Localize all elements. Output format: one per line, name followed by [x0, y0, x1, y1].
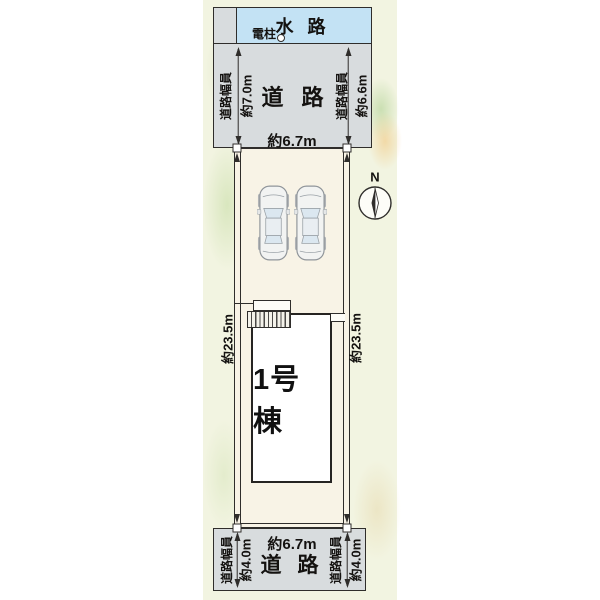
car-icon — [294, 185, 327, 261]
entrance-steps — [247, 311, 291, 328]
lot-depth-arrowhead — [344, 514, 350, 523]
lot-depth-value-west: 約23.5m — [222, 314, 235, 364]
waterway-band: 水路 — [213, 7, 372, 44]
building-outline: 1号棟 — [251, 313, 332, 483]
utility-pole-marker — [277, 34, 285, 42]
boundary-connector-east — [331, 313, 345, 322]
top-frontage-dimension: 約6.7m — [234, 130, 350, 151]
watercolor-blob — [368, 112, 402, 170]
lot-corner-marker — [343, 524, 352, 533]
bottom-road-width-caption-west: 道路幅員 — [221, 536, 233, 584]
north-compass-icon — [357, 185, 393, 221]
top-road-width-value-west: 約7.0m — [241, 75, 254, 118]
waterway-road-corner — [214, 8, 237, 43]
north-label: N — [370, 171, 379, 184]
lot-depth-arrowhead — [344, 153, 350, 162]
top-road-width-caption-west: 道路幅員 — [220, 72, 232, 120]
top-road-label: 道路 — [243, 80, 341, 112]
lot-depth-arrowhead — [234, 514, 240, 523]
lot-depth-value-east: 約23.5m — [350, 313, 363, 363]
top-road-width-caption-east: 道路幅員 — [336, 72, 348, 120]
boundary-connector-west — [235, 303, 253, 304]
utility-pole-label: 電柱 — [252, 28, 276, 40]
car-icon — [257, 185, 290, 261]
porch-canopy — [253, 300, 291, 311]
bottom-frontage-dimension: 約6.7m — [234, 533, 350, 554]
site-plan-canvas: 水路 電柱 道路 道路幅員 約7.0m 道路幅員 約6.6m 約6.7m 約23… — [0, 0, 600, 600]
building-label: 1号棟 — [253, 356, 330, 440]
bottom-road-width-value-east: 約4.0m — [350, 539, 363, 582]
top-road-width-value-east: 約6.6m — [356, 75, 369, 118]
lot-depth-arrowhead — [234, 153, 240, 162]
lot-corner-marker — [233, 524, 242, 533]
